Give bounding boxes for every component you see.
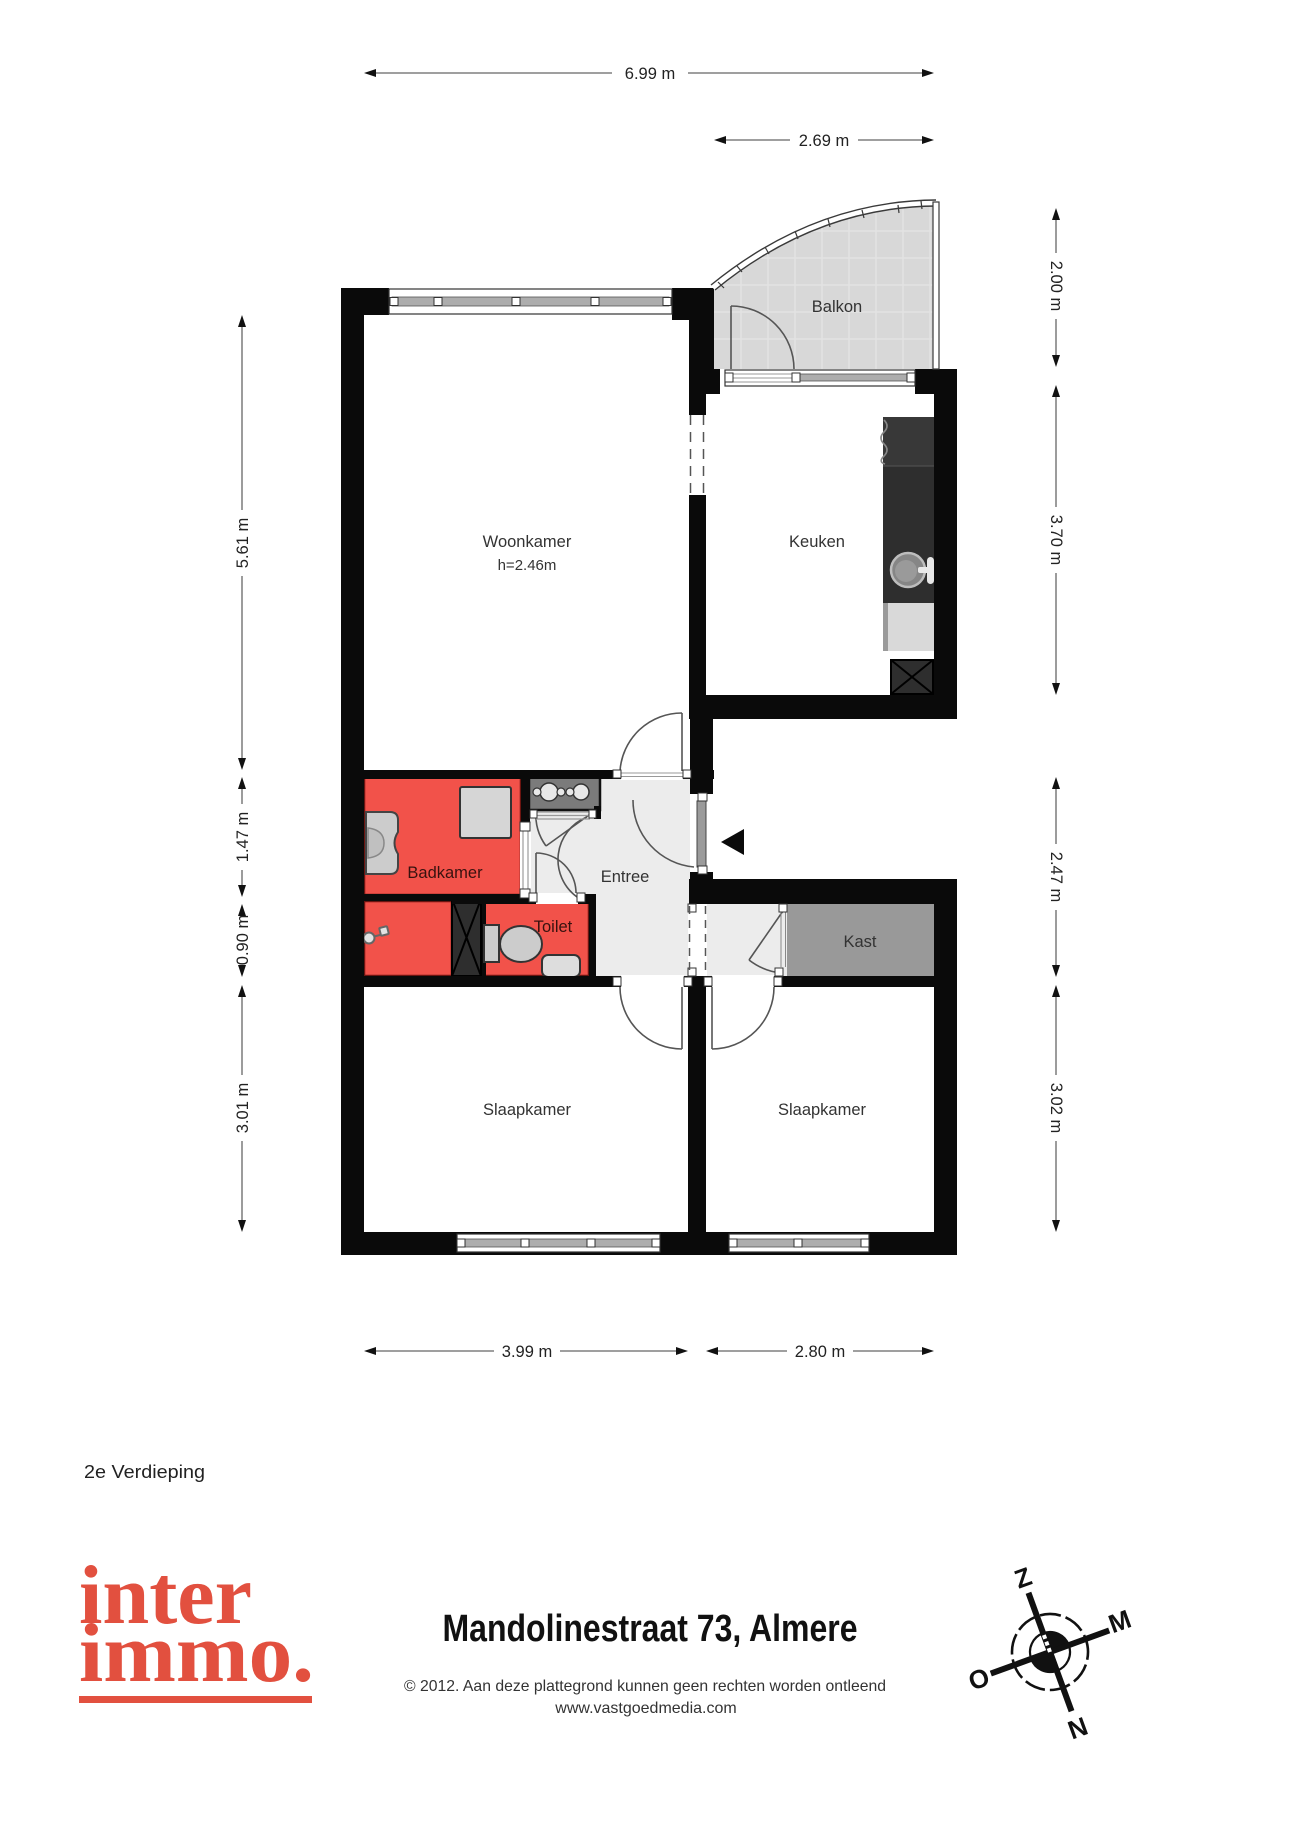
- svg-text:3.01 m: 3.01 m: [234, 1083, 252, 1133]
- svg-text:Entree: Entree: [601, 868, 650, 886]
- svg-text:3.99 m: 3.99 m: [502, 1343, 552, 1361]
- svg-text:© 2012. Aan deze plattegrond k: © 2012. Aan deze plattegrond kunnen geen…: [404, 1678, 886, 1695]
- svg-text:Balkon: Balkon: [812, 298, 862, 316]
- svg-text:3.02 m: 3.02 m: [1047, 1083, 1065, 1133]
- svg-text:Badkamer: Badkamer: [407, 864, 483, 882]
- svg-text:h=2.46m: h=2.46m: [498, 557, 557, 574]
- svg-text:Keuken: Keuken: [789, 533, 845, 551]
- svg-text:0.90 m: 0.90 m: [234, 915, 252, 965]
- svg-text:5.61 m: 5.61 m: [234, 518, 252, 568]
- svg-text:immo.: immo.: [79, 1607, 314, 1700]
- svg-text:Slaapkamer: Slaapkamer: [778, 1101, 867, 1119]
- svg-text:Kast: Kast: [843, 933, 876, 951]
- svg-text:2.69 m: 2.69 m: [799, 132, 849, 150]
- svg-text:Toilet: Toilet: [534, 918, 573, 936]
- svg-text:6.99 m: 6.99 m: [625, 65, 675, 83]
- svg-text:2.80 m: 2.80 m: [795, 1343, 845, 1361]
- svg-text:Woonkamer: Woonkamer: [483, 533, 572, 551]
- svg-text:2.00 m: 2.00 m: [1047, 261, 1065, 311]
- svg-text:1.47 m: 1.47 m: [234, 812, 252, 862]
- svg-text:Slaapkamer: Slaapkamer: [483, 1101, 572, 1119]
- svg-text:Mandolinestraat 73, Almere: Mandolinestraat 73, Almere: [443, 1608, 858, 1650]
- svg-text:3.70 m: 3.70 m: [1047, 515, 1065, 565]
- svg-text:www.vastgoedmedia.com: www.vastgoedmedia.com: [554, 1700, 736, 1717]
- svg-text:2.47 m: 2.47 m: [1047, 852, 1065, 902]
- svg-text:2e Verdieping: 2e Verdieping: [84, 1462, 205, 1482]
